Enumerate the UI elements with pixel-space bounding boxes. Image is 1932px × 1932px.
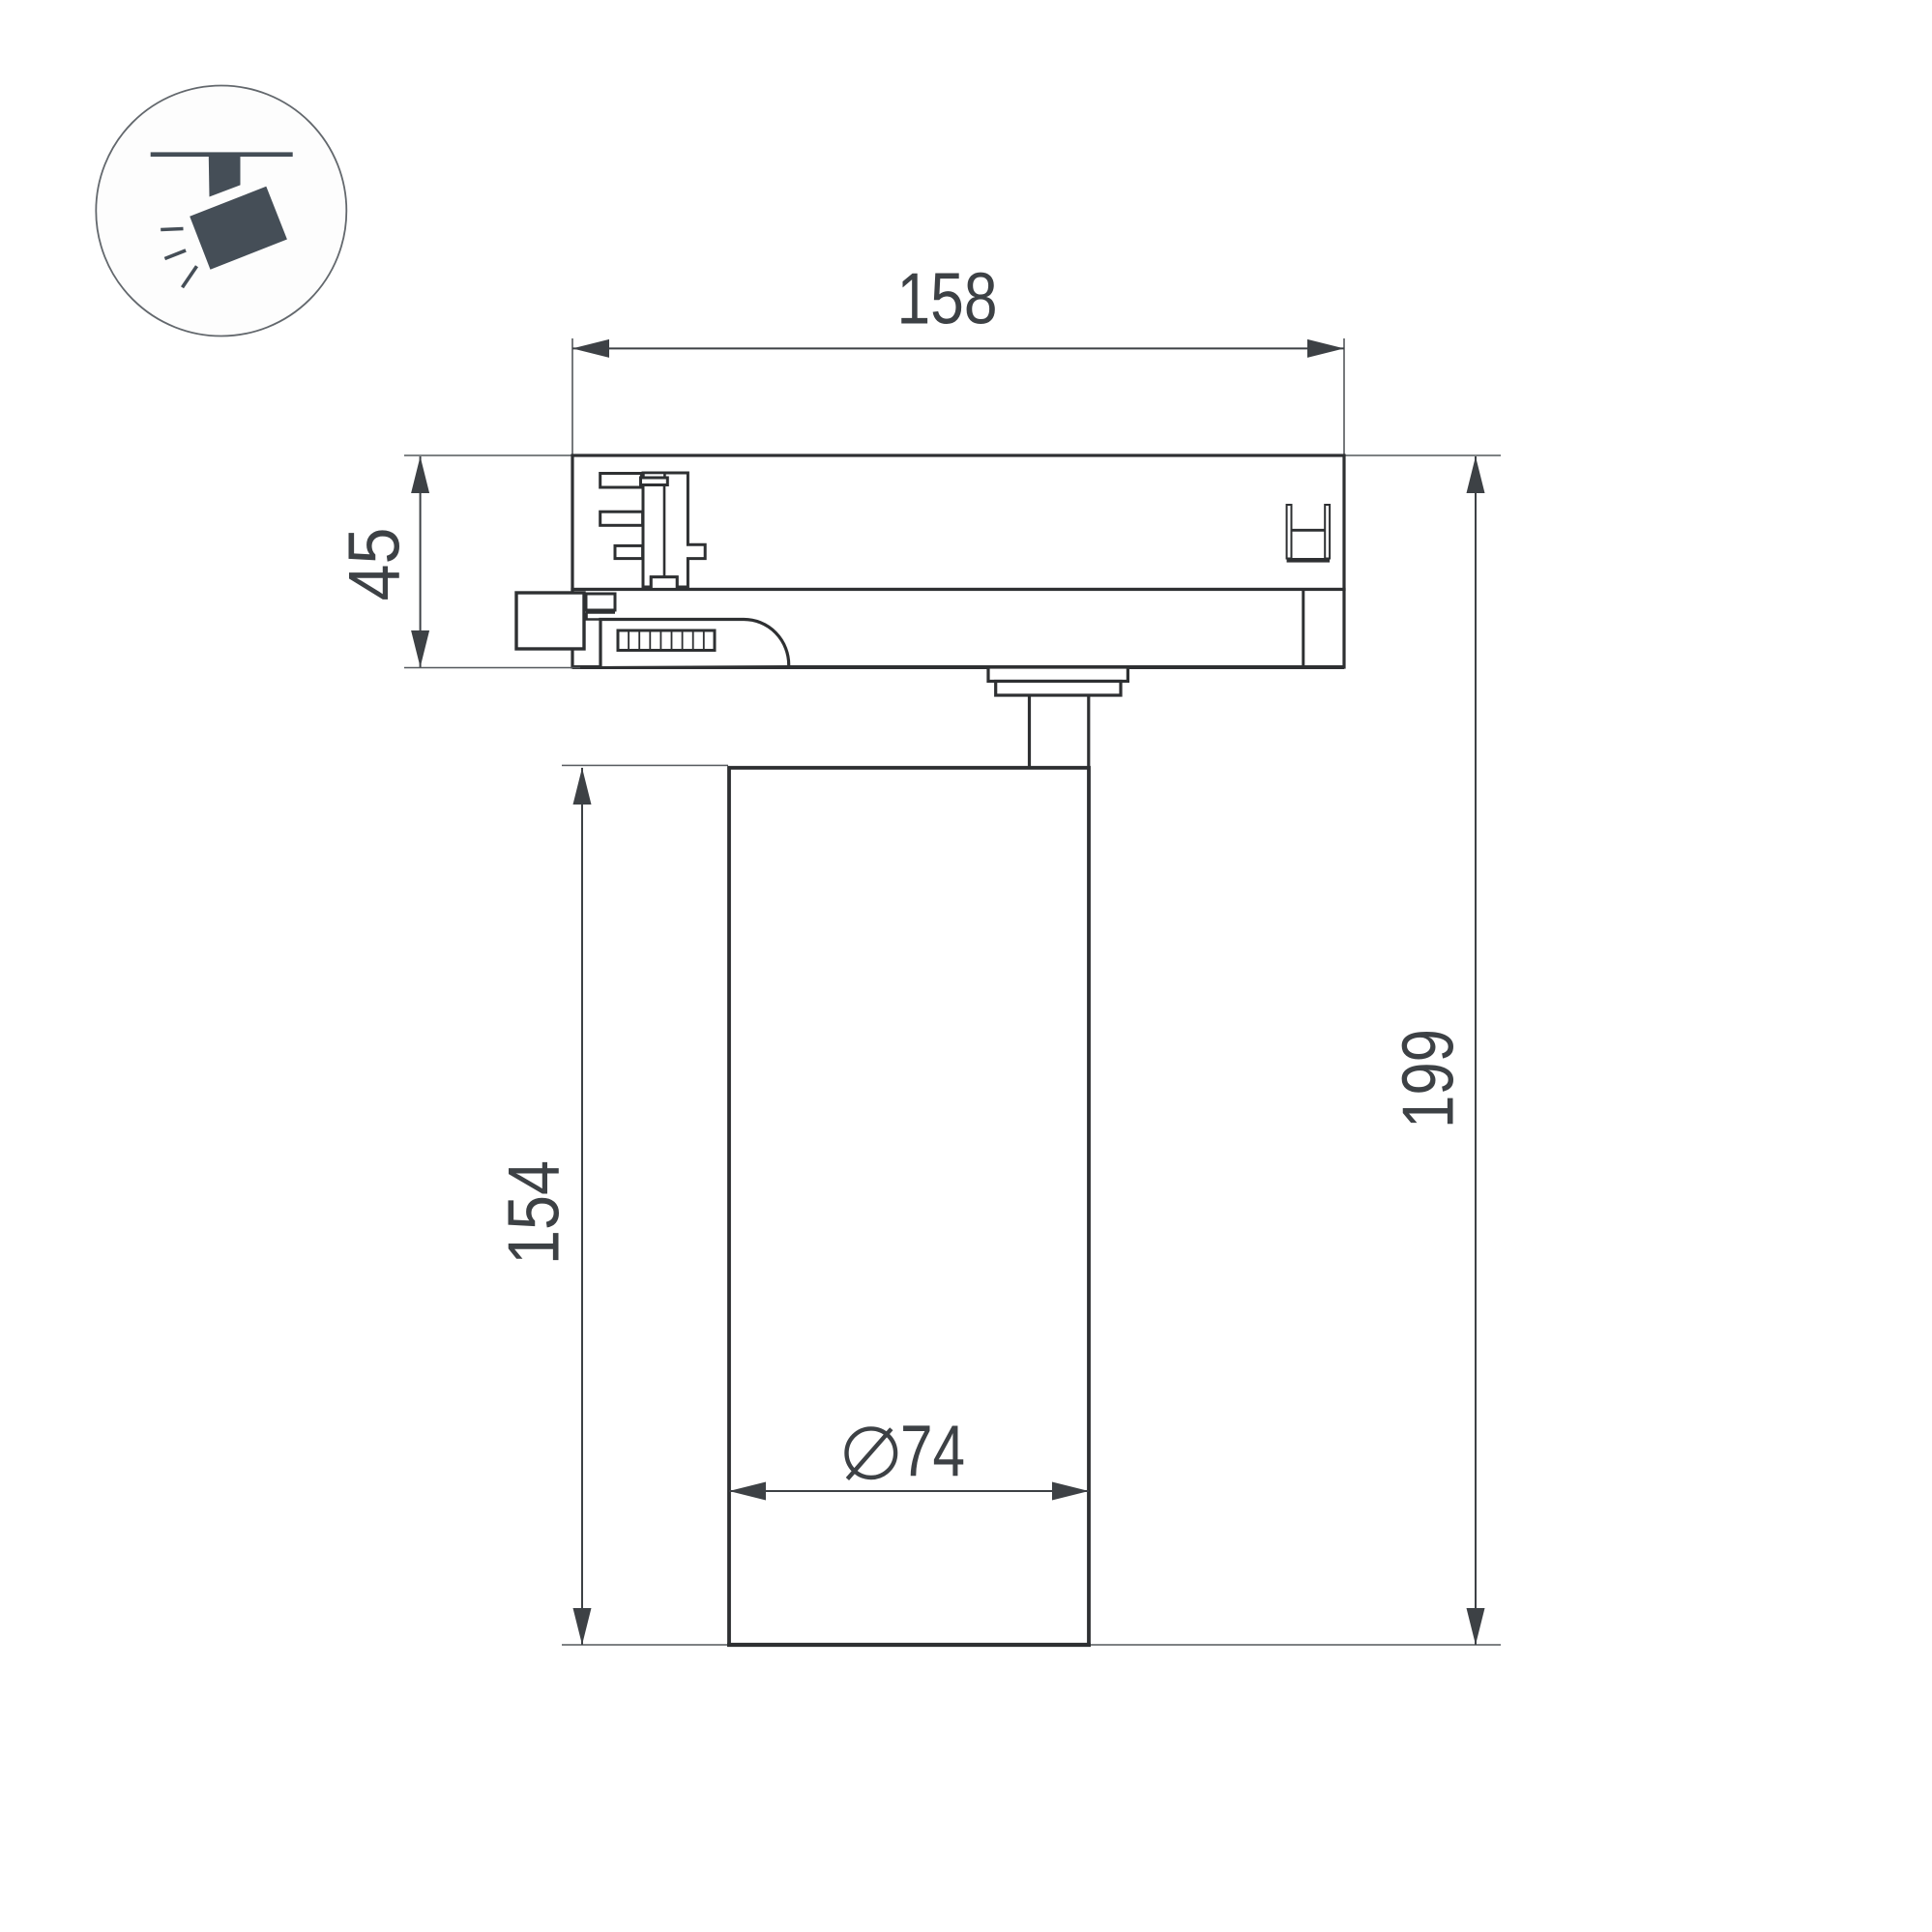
svg-text:199: 199: [1388, 1029, 1469, 1128]
svg-text:45: 45: [334, 528, 415, 601]
svg-text:74: 74: [900, 1410, 965, 1491]
svg-text:154: 154: [493, 1160, 574, 1265]
svg-text:158: 158: [897, 258, 998, 339]
